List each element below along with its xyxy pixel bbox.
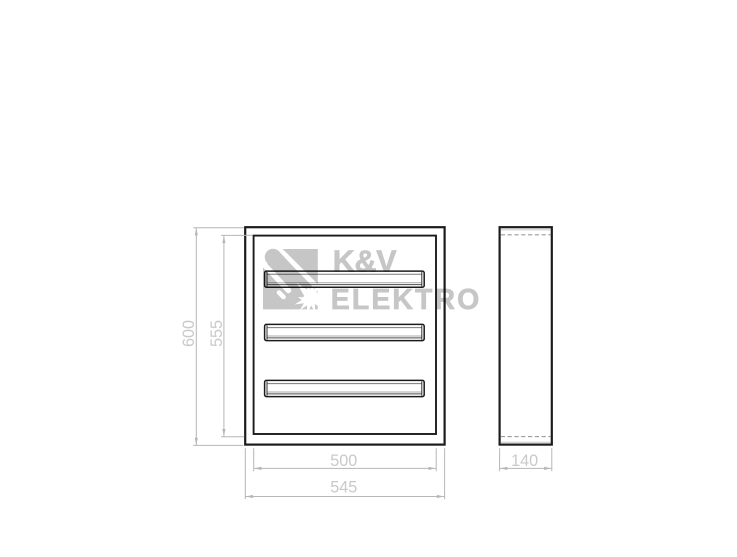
svg-text:ELEKTRO: ELEKTRO	[331, 284, 482, 316]
svg-text:555: 555	[208, 320, 226, 347]
svg-text:545: 545	[330, 478, 357, 496]
svg-text:500: 500	[330, 452, 357, 470]
svg-text:600: 600	[180, 320, 198, 347]
svg-text:140: 140	[511, 452, 538, 470]
svg-text:K&V: K&V	[333, 245, 397, 279]
